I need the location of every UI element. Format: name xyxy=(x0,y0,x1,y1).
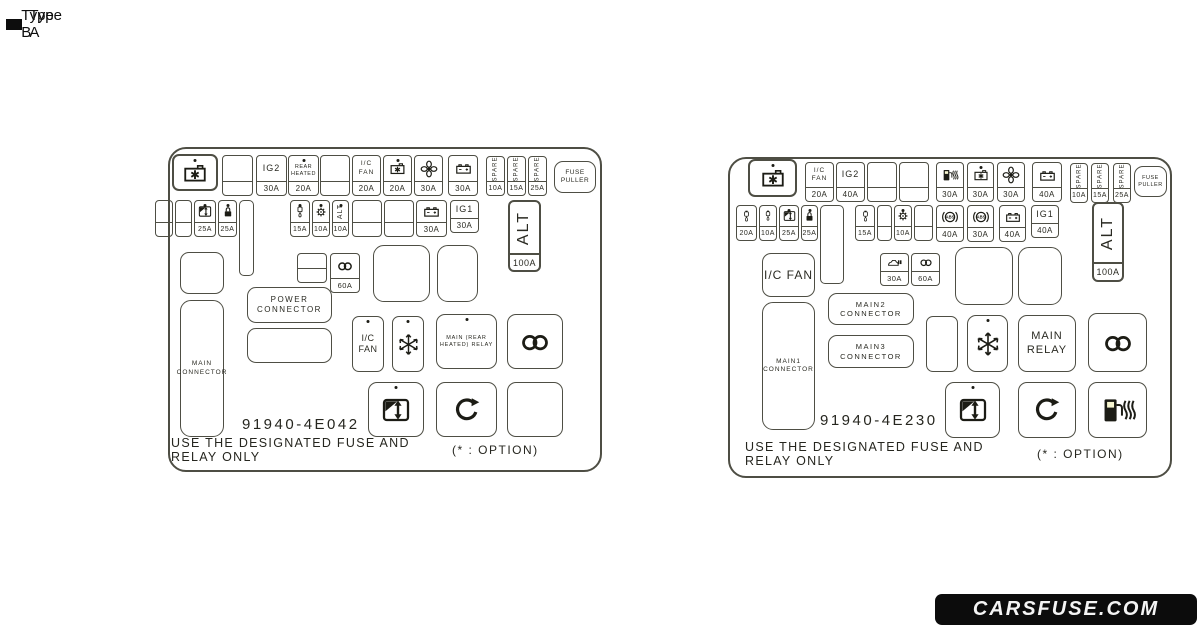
fuse-blank xyxy=(384,200,414,237)
relay-fuel-heater xyxy=(1088,382,1147,438)
fuse-label: REAR HEATED xyxy=(289,156,318,181)
fuse-amp xyxy=(868,187,896,201)
fuse-label: SPARE xyxy=(1119,164,1125,188)
fuse-amp: 15A xyxy=(856,226,874,240)
option-note-a: (* : OPTION) xyxy=(452,443,539,457)
main3-connector-label: MAIN3 CONNECTOR xyxy=(829,342,913,361)
power-window-icon xyxy=(379,394,413,426)
fuse-amp: 40A xyxy=(1000,227,1025,241)
fuse-spare-15: SPARE 15A xyxy=(1091,163,1109,203)
main1-connector-label: MAIN1 CONNECTOR xyxy=(763,358,814,374)
fuse-amp: 30A xyxy=(998,187,1024,201)
square-bullet-icon xyxy=(6,19,14,30)
fuse-amp xyxy=(900,187,928,201)
relay-slot-blank xyxy=(180,252,224,294)
ic-fan-box-label: I/C FAN xyxy=(764,268,813,283)
relay-coil xyxy=(1088,313,1147,372)
fuse-amp: 10A xyxy=(333,222,348,236)
fuse-amp: 40A xyxy=(1032,223,1058,237)
fuse-amp: 30A xyxy=(968,227,993,241)
fuse-amp: 10A xyxy=(895,226,911,240)
fuse-blank xyxy=(877,205,892,241)
fuse-washer-3: 15A xyxy=(855,205,875,241)
relay-slot-blank xyxy=(507,382,563,437)
fuel-heater-icon xyxy=(1098,393,1138,427)
fuse-power-window: 25A xyxy=(779,205,799,241)
fuse-abs-2: 30A xyxy=(967,205,994,242)
relay-main-rear-heated: MAIN (REAR HEATED) RELAY xyxy=(436,314,497,369)
fuse-amp: 20A xyxy=(384,181,411,195)
relay-slot-blank xyxy=(437,245,478,302)
abs-icon xyxy=(941,208,959,226)
fuse-amp: 15A xyxy=(291,222,309,236)
relay-ac-compressor xyxy=(392,316,424,372)
fuse-amp: 10A xyxy=(760,226,776,240)
fuse-ig1: IG1 30A xyxy=(450,200,479,233)
fuse-spare-25: SPARE 25A xyxy=(1113,163,1131,203)
connector-slot-blank xyxy=(247,328,332,363)
fuse-washer-2: 10A xyxy=(759,205,777,241)
fuse-amp: 25A xyxy=(1114,188,1130,202)
washer-fluid-icon xyxy=(859,209,872,224)
warning-line-1: USE THE DESIGNATED FUSE AND xyxy=(745,441,984,455)
fuse-label: SPARE xyxy=(514,157,520,181)
relay-coil xyxy=(507,314,563,369)
fuse-power-window: 25A xyxy=(194,200,216,237)
relay-label: MAIN (REAR HEATED) RELAY xyxy=(437,335,496,349)
fuse-label: ALT xyxy=(516,210,534,244)
coil-icon xyxy=(1097,328,1139,358)
fuse-label: ALT xyxy=(337,204,344,219)
fuse-label: SPARE xyxy=(1076,164,1082,188)
fuse-amp: 100A xyxy=(1094,262,1122,280)
fuse-blank-pair xyxy=(297,253,327,283)
fuse-gear: 10A xyxy=(312,200,330,237)
power-connector: POWER CONNECTOR xyxy=(247,287,332,323)
fuse-blank xyxy=(352,200,382,237)
fuse-coil: 60A xyxy=(911,253,940,286)
fuse-puller-label: FUSE PULLER xyxy=(1135,175,1166,189)
battery-charge-icon xyxy=(178,160,212,186)
coil-icon xyxy=(335,258,355,274)
fuse-amp xyxy=(915,226,932,240)
relay-starter xyxy=(436,382,497,437)
washer-fluid-icon xyxy=(740,209,753,224)
fuse-puller: FUSE PULLER xyxy=(1134,166,1167,197)
fuse-label: ALT xyxy=(1099,216,1117,250)
washer-fluid-icon xyxy=(762,209,774,223)
battery-icon xyxy=(1038,167,1057,184)
fuse-gear: 10A xyxy=(894,205,912,241)
relay-slot-blank xyxy=(1018,247,1062,305)
fuse-blank xyxy=(899,162,929,202)
power-window-icon xyxy=(956,394,990,426)
fuse-battery: 40A xyxy=(1032,162,1062,202)
fuse-amp: 40A xyxy=(837,187,864,201)
fuse-amp: 30A xyxy=(449,181,477,195)
relay-slot-blank xyxy=(926,316,958,372)
rotate-arrow-icon xyxy=(451,394,483,426)
fuse-label: IG1 xyxy=(451,201,478,218)
fuse-ig2: IG2 30A xyxy=(256,155,287,196)
main1-connector: MAIN1 CONNECTOR xyxy=(762,302,815,430)
battery-icon xyxy=(1004,209,1022,225)
fuse-label: I/C FAN xyxy=(353,156,380,181)
fuse-blank xyxy=(914,205,933,241)
fuse-amp: 25A xyxy=(195,222,215,236)
battery-charge-icon xyxy=(973,167,989,183)
fuse-label: IG1 xyxy=(1032,206,1058,223)
power-window-icon xyxy=(782,209,797,223)
fuse-amp xyxy=(321,181,349,195)
fuse-label: IG2 xyxy=(257,156,286,181)
part-number-b: 91940-4E230 xyxy=(820,412,938,429)
warning-line-1: USE THE DESIGNATED FUSE AND xyxy=(171,437,410,451)
fuse-spare-10: SPARE 10A xyxy=(1070,163,1088,203)
fuse-amp: 25A xyxy=(529,181,546,195)
fuse-amp: 30A xyxy=(451,218,478,232)
fuse-amp: 30A xyxy=(968,187,993,201)
ic-fan-box: I/C FAN xyxy=(762,253,815,297)
fuse-abs-1: 40A xyxy=(936,205,964,242)
fuse-battery: 30A xyxy=(448,155,478,196)
fuse-amp xyxy=(156,222,172,236)
power-window-icon xyxy=(197,204,213,219)
fuse-car-wash: 30A xyxy=(880,253,909,286)
fuse-blank xyxy=(867,162,897,202)
main2-connector-label: MAIN2 CONNECTOR xyxy=(829,300,913,319)
fuse-alt-main: ALT 100A xyxy=(1092,202,1124,282)
main3-connector: MAIN3 CONNECTOR xyxy=(828,335,914,368)
fuse-amp: 30A xyxy=(881,271,908,285)
fuse-label: SPARE xyxy=(493,157,499,181)
fuse-amp xyxy=(353,222,381,236)
fuse-amp: 20A xyxy=(353,181,380,195)
fuse-label: SPARE xyxy=(1097,164,1103,188)
fuse-amp: 25A xyxy=(780,226,798,240)
fuse-amp xyxy=(385,222,413,236)
relay-starter xyxy=(1018,382,1076,438)
fuse-fan: 30A xyxy=(414,155,443,196)
car-wash-icon xyxy=(885,255,904,270)
carsfuse-logo: CARSFUSE.COM xyxy=(935,594,1197,625)
fuse-washer-1: 20A xyxy=(736,205,757,241)
fuse-box-diagram-page: Type A IG2 30A REAR HEATED 20A I/C FAN 2… xyxy=(0,0,1200,628)
battery-icon xyxy=(454,160,473,177)
main-connector: MAIN CONNECTOR xyxy=(180,300,224,437)
snowflake-icon xyxy=(396,332,421,357)
relay-ac-compressor xyxy=(967,315,1008,372)
option-note-b: (* : OPTION) xyxy=(1037,447,1124,461)
fuse-fuel-heater: 30A xyxy=(936,162,964,202)
relay-ic-fan: I/C FAN xyxy=(352,316,384,372)
fuse-amp xyxy=(176,222,191,236)
fuse-blank xyxy=(175,200,192,237)
fuse-puller-label: FUSE PULLER xyxy=(555,169,595,185)
relay-slot-blank xyxy=(955,247,1013,305)
fuse-amp: 60A xyxy=(331,278,359,292)
abs-icon xyxy=(972,208,990,226)
warning-text-b: USE THE DESIGNATED FUSE AND RELAY ONLY xyxy=(745,441,984,468)
fuse-spare-15: SPARE 15A xyxy=(507,156,526,196)
battery-charge-icon xyxy=(389,160,406,177)
washer-fluid-icon xyxy=(293,204,307,220)
main-connector-label: MAIN CONNECTOR xyxy=(177,360,228,376)
relay-slot-blank xyxy=(373,245,430,302)
type-b-title: Type B xyxy=(6,7,57,41)
fuse-label: IG2 xyxy=(837,163,864,187)
warning-line-2: RELAY ONLY xyxy=(171,451,410,465)
fuse-amp: 20A xyxy=(806,187,833,201)
fuse-blank xyxy=(222,155,253,196)
fuse-amp xyxy=(878,226,891,240)
fuse-rear-heated: REAR HEATED 20A xyxy=(288,155,319,196)
fuse-amp: 25A xyxy=(219,222,236,236)
fuse-amp: 25A xyxy=(802,226,817,240)
door-lock-icon xyxy=(221,205,235,219)
warning-text-a: USE THE DESIGNATED FUSE AND RELAY ONLY xyxy=(171,437,410,464)
fuse-battery-charge: 20A xyxy=(383,155,412,196)
fuse-blank xyxy=(155,200,173,237)
relay-power-window xyxy=(368,382,424,437)
coil-icon xyxy=(917,256,935,269)
door-lock-icon xyxy=(803,210,816,223)
fuse-slot-blank-tall xyxy=(820,205,844,284)
fuse-amp: 100A xyxy=(510,253,539,270)
fuse-door-lock: 25A xyxy=(801,205,818,241)
warning-line-2: RELAY ONLY xyxy=(745,455,984,469)
relay-main: MAIN RELAY xyxy=(1018,315,1076,372)
fuse-ig1: IG1 40A xyxy=(1031,205,1059,238)
fuse-battery-2: 40A xyxy=(999,205,1026,242)
main2-connector: MAIN2 CONNECTOR xyxy=(828,293,914,325)
rotate-arrow-icon xyxy=(1031,394,1063,426)
type-b-label: Type B xyxy=(21,7,56,41)
carsfuse-logo-text: CARSFUSE.COM xyxy=(973,598,1159,621)
fuse-amp: 10A xyxy=(487,181,504,195)
fuse-amp: 20A xyxy=(737,226,756,240)
fuse-amp: 15A xyxy=(508,181,525,195)
fuse-amp: 10A xyxy=(313,222,329,236)
gear-icon xyxy=(314,205,328,219)
coil-icon xyxy=(515,327,555,357)
main-relay-label: MAIN RELAY xyxy=(1019,330,1075,358)
relay-label: I/C FAN xyxy=(353,333,383,356)
fan-icon xyxy=(1002,166,1020,184)
fuse-amp: 40A xyxy=(1033,187,1061,201)
fuse-amp: 40A xyxy=(937,227,963,241)
part-number-a: 91940-4E042 xyxy=(242,416,360,433)
fuse-coil: 60A xyxy=(330,253,360,293)
fuse-ig2: IG2 40A xyxy=(836,162,865,202)
relay-power-window xyxy=(945,382,1000,438)
fuse-alt: ALT 10A xyxy=(332,200,349,237)
fuse-amp: 15A xyxy=(1092,188,1108,202)
fuse-battery-2: 30A xyxy=(416,200,447,237)
snowflake-icon xyxy=(974,330,1002,358)
fan-icon xyxy=(420,160,438,178)
fuse-washer: 15A xyxy=(290,200,310,237)
fuse-amp: 30A xyxy=(415,181,442,195)
fuse-ic-fan: I/C FAN 20A xyxy=(352,155,381,196)
fuse-amp: 10A xyxy=(1071,188,1087,202)
relay-battery-charge-main xyxy=(172,154,218,191)
fuse-label: SPARE xyxy=(535,157,541,181)
fuse-fan: 30A xyxy=(997,162,1025,202)
fuse-amp xyxy=(223,181,252,195)
fuse-label: I/C FAN xyxy=(806,163,833,187)
battery-icon xyxy=(422,203,441,220)
fuse-amp: 30A xyxy=(937,187,963,201)
relay-battery-charge-main xyxy=(748,159,797,197)
fuse-slot-blank-tall xyxy=(239,200,254,276)
fuse-spare-10: SPARE 10A xyxy=(486,156,505,196)
fuse-amp: 30A xyxy=(257,181,286,195)
battery-charge-icon xyxy=(756,165,790,191)
power-connector-label: POWER CONNECTOR xyxy=(248,295,331,315)
fuse-battery-charge: 30A xyxy=(967,162,994,202)
fuse-amp: 20A xyxy=(289,181,318,195)
fuel-heater-icon xyxy=(941,167,959,183)
fuse-amp: 30A xyxy=(417,222,446,236)
gear-icon xyxy=(896,209,910,223)
fuse-puller: FUSE PULLER xyxy=(554,161,596,193)
fuse-spare-25: SPARE 25A xyxy=(528,156,547,196)
fuse-blank xyxy=(320,155,350,196)
fuse-alt-main: ALT 100A xyxy=(508,200,541,272)
fuse-ic-fan: I/C FAN 20A xyxy=(805,162,834,202)
fuse-amp: 60A xyxy=(912,271,939,285)
fuse-amp xyxy=(298,268,326,282)
fuse-door-lock: 25A xyxy=(218,200,237,237)
